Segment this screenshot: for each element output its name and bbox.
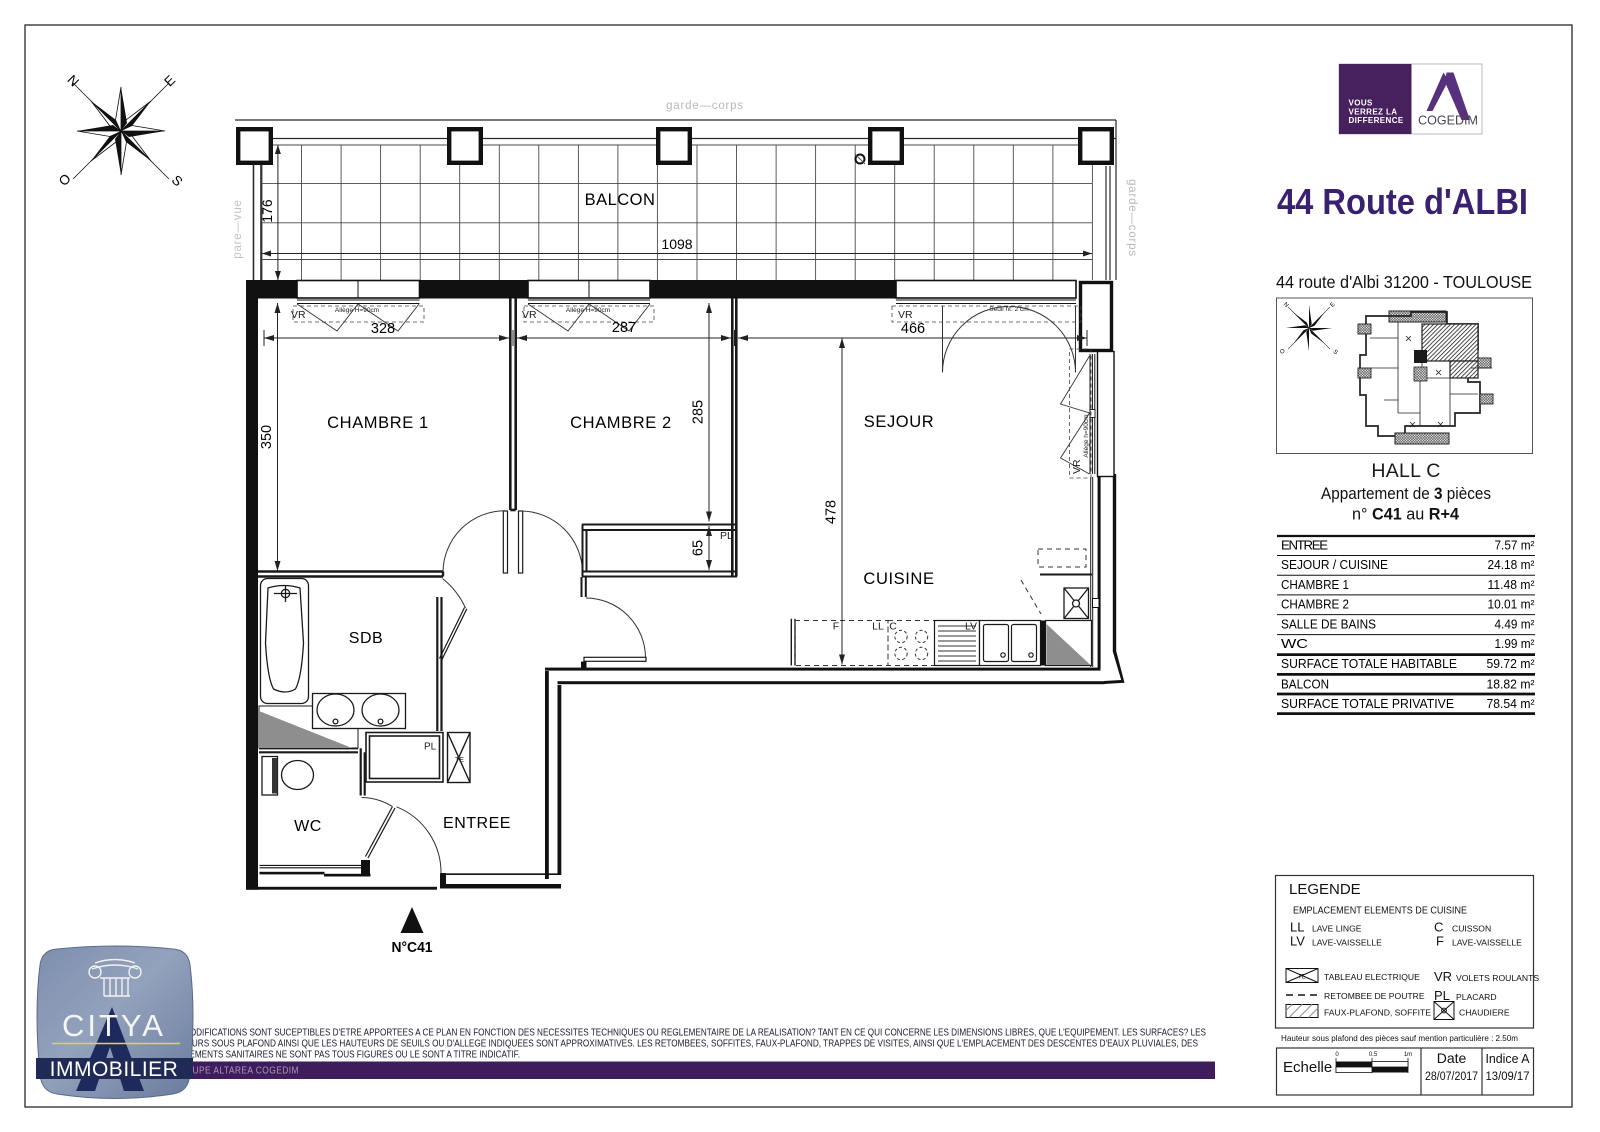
svg-text:4.49 m²: 4.49 m² xyxy=(1495,617,1536,632)
svg-text:478: 478 xyxy=(824,500,840,524)
svg-text:1m: 1m xyxy=(1404,1052,1412,1058)
svg-text:SURFACE TOTALE PRIVATIVE: SURFACE TOTALE PRIVATIVE xyxy=(1281,696,1454,711)
svg-text:Date: Date xyxy=(1437,1050,1467,1066)
svg-text:TABLEAU ELECTRIQUE: TABLEAU ELECTRIQUE xyxy=(1324,972,1420,982)
svg-text:C: C xyxy=(1434,920,1443,935)
svg-text:13/09/17: 13/09/17 xyxy=(1486,1071,1530,1083)
svg-text:Seuil ht: 2 cm: Seuil ht: 2 cm xyxy=(989,306,1028,313)
svg-text:DIFFERENCE: DIFFERENCE xyxy=(1349,116,1404,125)
svg-text:F: F xyxy=(833,621,839,633)
svg-text:SDB: SDB xyxy=(349,630,383,647)
svg-text:VOUS: VOUS xyxy=(1349,99,1374,108)
svg-text:24.18 m²: 24.18 m² xyxy=(1488,557,1536,572)
svg-text:HAUTEURS SOUS PLAFOND AINSI QU: HAUTEURS SOUS PLAFOND AINSI QUE LES HAUT… xyxy=(164,1039,1198,1050)
svg-text:SEJOUR / CUISINE: SEJOUR / CUISINE xyxy=(1281,557,1388,572)
svg-text:Echelle: Echelle xyxy=(1283,1059,1332,1076)
svg-text:LAVE-VAISSELLE: LAVE-VAISSELLE xyxy=(1452,938,1522,948)
svg-text:C: C xyxy=(889,621,897,633)
svg-text:TE: TE xyxy=(455,757,464,764)
svg-text:Allège h=90cm: Allège h=90cm xyxy=(1083,414,1090,457)
svg-text:F: F xyxy=(1436,934,1444,949)
svg-text:COGEDIM: COGEDIM xyxy=(1418,114,1478,128)
svg-text:CITYA: CITYA xyxy=(62,1008,166,1043)
svg-text:SURFACE TOTALE HABITABLE: SURFACE TOTALE HABITABLE xyxy=(1281,656,1457,671)
svg-text:VR: VR xyxy=(1434,969,1452,984)
svg-text:10.01 m²: 10.01 m² xyxy=(1488,597,1536,612)
svg-text:Hauteur sous plafond des pièce: Hauteur sous plafond des pièces sauf men… xyxy=(1281,1033,1518,1043)
svg-text:328: 328 xyxy=(371,321,395,337)
svg-text:DES MODIFICATIONS SONT SUCEPTI: DES MODIFICATIONS SONT SUCEPTIBLES D'ETR… xyxy=(164,1028,1206,1039)
svg-text:CHAMBRE 1: CHAMBRE 1 xyxy=(1281,577,1349,592)
svg-text:65: 65 xyxy=(691,540,707,556)
svg-text:LAVE LINGE: LAVE LINGE xyxy=(1312,924,1362,934)
svg-text:RETOMBEE DE POUTRE: RETOMBEE DE POUTRE xyxy=(1324,991,1425,1001)
svg-text:CHAMBRE 2: CHAMBRE 2 xyxy=(570,414,672,432)
svg-text:PL: PL xyxy=(424,742,437,753)
svg-text:CUISINE: CUISINE xyxy=(863,570,934,588)
svg-text:ENTREE: ENTREE xyxy=(443,815,511,832)
svg-text:BALCON: BALCON xyxy=(585,191,656,209)
svg-text:WC: WC xyxy=(294,818,322,835)
svg-text:IMMOBILIER: IMMOBILIER xyxy=(50,1058,179,1081)
svg-text:VERREZ LA: VERREZ LA xyxy=(1349,107,1398,116)
svg-text:28/07/2017: 28/07/2017 xyxy=(1425,1071,1478,1083)
svg-text:0.5: 0.5 xyxy=(1369,1052,1378,1058)
svg-text:7.57 m²: 7.57 m² xyxy=(1495,538,1536,553)
svg-text:BALCON: BALCON xyxy=(1281,677,1329,692)
svg-text:78.54 m²: 78.54 m² xyxy=(1487,696,1536,711)
svg-text:350: 350 xyxy=(259,425,275,449)
svg-text:CHAMBRE 1: CHAMBRE 1 xyxy=(327,414,429,432)
svg-text:176: 176 xyxy=(259,199,275,223)
svg-text:garde—corps: garde—corps xyxy=(1126,179,1138,257)
svg-text:Indice A: Indice A xyxy=(1486,1051,1530,1066)
svg-text:EQUIPEMENTS SANITAIRES NE SONT: EQUIPEMENTS SANITAIRES NE SONT PAS TOUS … xyxy=(164,1050,520,1061)
svg-text:LL: LL xyxy=(872,621,884,633)
svg-text:PLACARD: PLACARD xyxy=(1456,992,1497,1002)
svg-text:PL: PL xyxy=(1434,988,1450,1003)
svg-text:18.82 m²: 18.82 m² xyxy=(1487,677,1536,692)
svg-text:Allège H=90cm: Allège H=90cm xyxy=(566,307,610,314)
svg-text:Appartement de 3 pièces: Appartement de 3 pièces xyxy=(1321,485,1491,503)
svg-text:CUISSON: CUISSON xyxy=(1452,924,1491,934)
svg-text:pare—vue: pare—vue xyxy=(232,199,244,258)
svg-text:44 Route d'ALBI: 44 Route d'ALBI xyxy=(1277,181,1528,222)
svg-text:11.48 m²: 11.48 m² xyxy=(1488,577,1536,592)
svg-text:CHAMBRE 2: CHAMBRE 2 xyxy=(1281,597,1349,612)
svg-text:garde—corps: garde—corps xyxy=(666,100,744,112)
svg-text:VR: VR xyxy=(291,309,306,321)
svg-text:LEGENDE: LEGENDE xyxy=(1289,881,1361,898)
svg-text:VR: VR xyxy=(522,309,537,321)
svg-text:466: 466 xyxy=(901,321,925,337)
svg-text:44 route d'Albi 31200 - TOULOU: 44 route d'Albi 31200 - TOULOUSE xyxy=(1276,272,1532,292)
svg-text:WC: WC xyxy=(1281,636,1309,651)
svg-text:VR: VR xyxy=(1071,459,1083,474)
svg-text:Allège H=90cm: Allège H=90cm xyxy=(335,307,379,314)
svg-text:SALLE DE BAINS: SALLE DE BAINS xyxy=(1281,617,1376,632)
svg-text:EMPLACEMENT ELEMENTS DE CUISIN: EMPLACEMENT ELEMENTS DE CUISINE xyxy=(1293,906,1467,917)
svg-text:59.72 m²: 59.72 m² xyxy=(1487,656,1536,671)
svg-text:N°C41: N°C41 xyxy=(392,940,433,956)
svg-text:285: 285 xyxy=(691,400,707,424)
svg-text:SEJOUR: SEJOUR xyxy=(864,413,935,431)
svg-text:LV: LV xyxy=(965,621,977,633)
svg-text:1.99 m²: 1.99 m² xyxy=(1495,636,1536,651)
svg-text:ENTREE: ENTREE xyxy=(1281,538,1328,553)
svg-text:TE: TE xyxy=(1298,975,1306,981)
svg-text:CHAUDIERE: CHAUDIERE xyxy=(1459,1008,1510,1018)
svg-text:LL: LL xyxy=(1290,920,1304,935)
svg-text:1098: 1098 xyxy=(661,236,692,252)
svg-text:VR: VR xyxy=(898,309,913,321)
svg-text:FAUX-PLAFOND, SOFFITE: FAUX-PLAFOND, SOFFITE xyxy=(1324,1008,1431,1018)
svg-text:VOLETS ROULANTS: VOLETS ROULANTS xyxy=(1456,973,1539,983)
svg-text:LAVE-VAISSELLE: LAVE-VAISSELLE xyxy=(1312,938,1382,948)
svg-text:n° C41 au R+4: n° C41 au R+4 xyxy=(1352,506,1460,524)
svg-text:287: 287 xyxy=(612,320,636,336)
svg-text:HALL C: HALL C xyxy=(1371,460,1440,482)
svg-text:LV: LV xyxy=(1290,934,1305,949)
